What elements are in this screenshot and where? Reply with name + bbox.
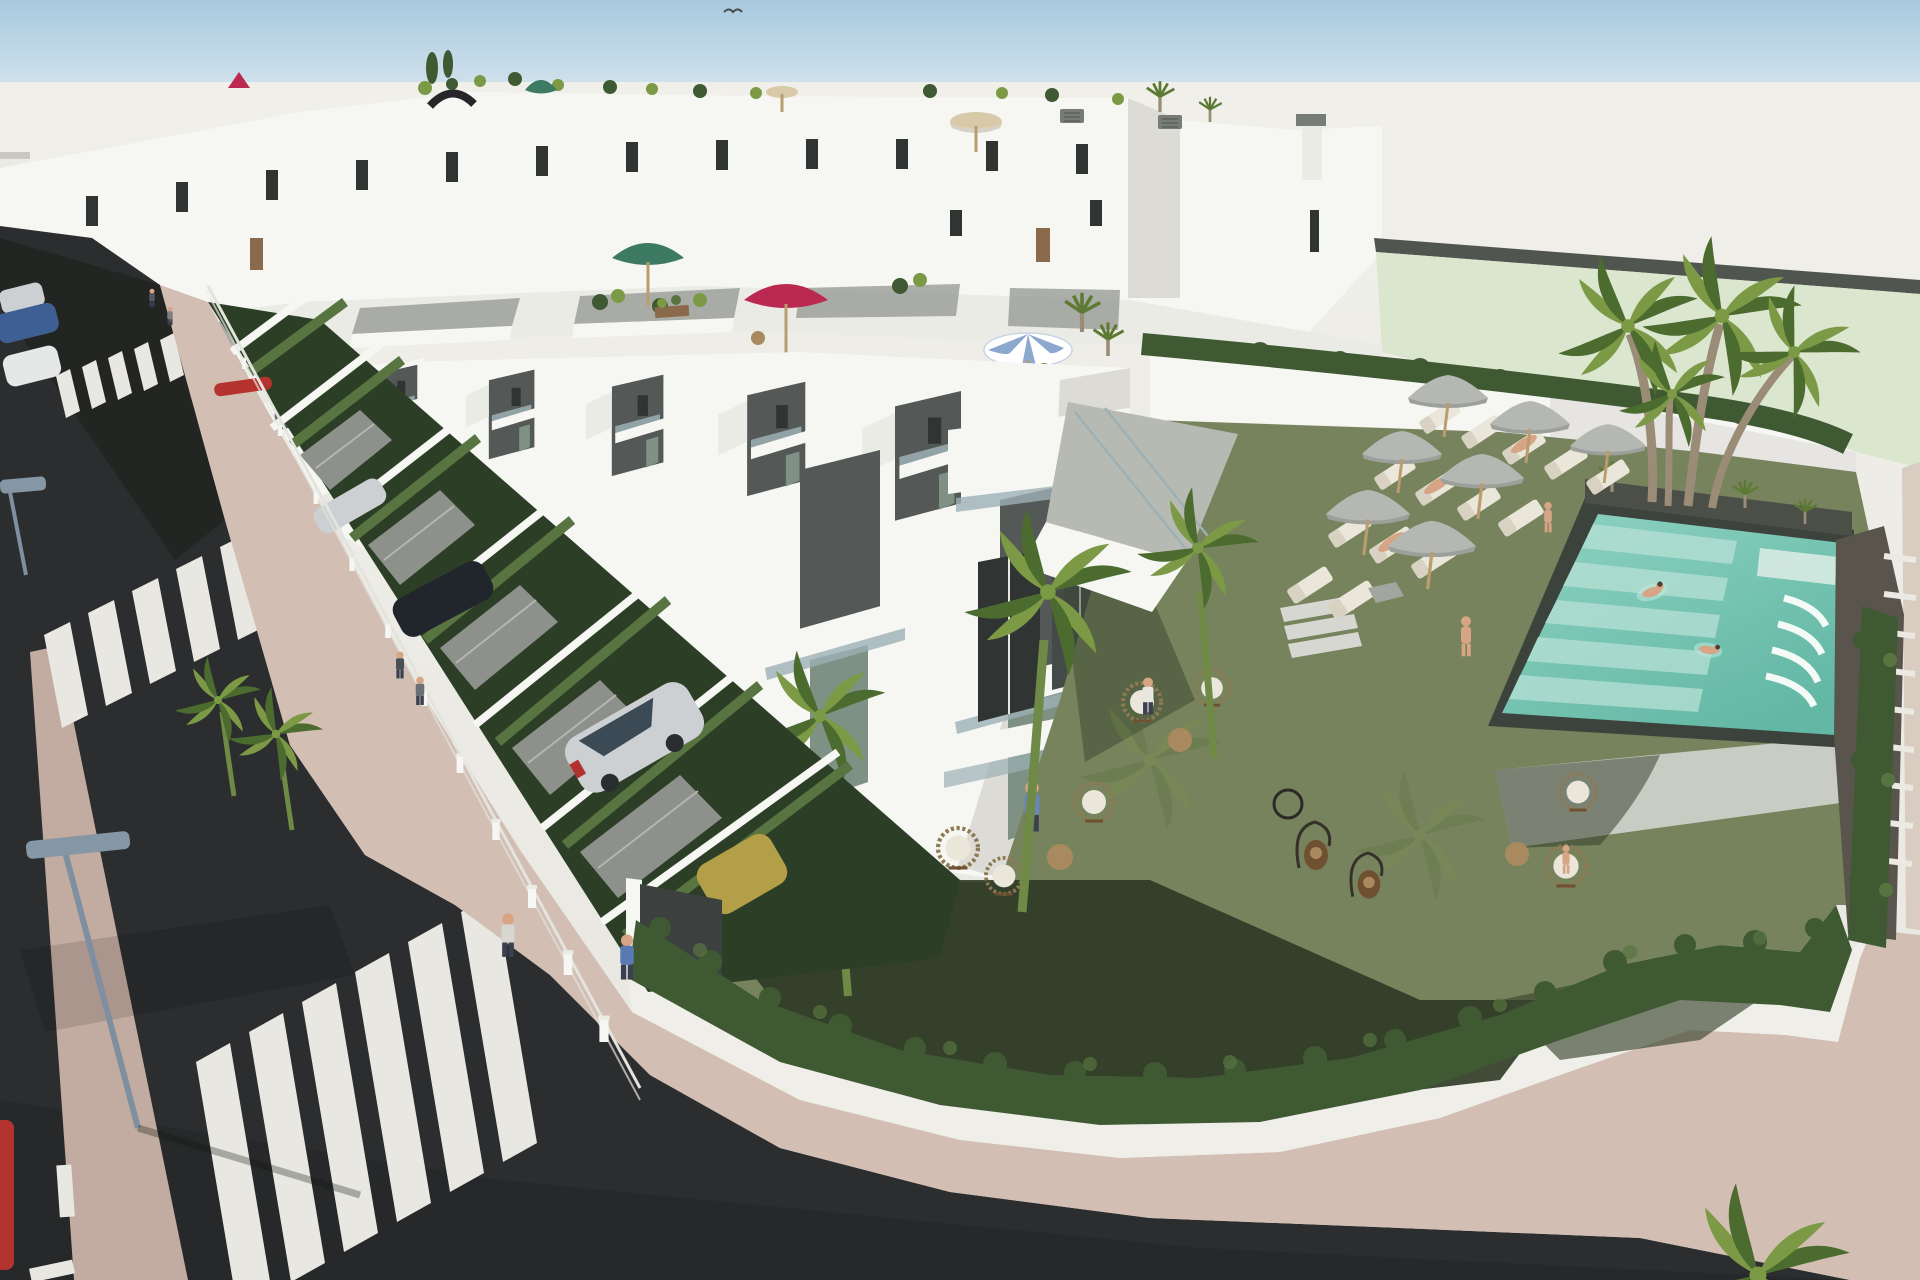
chimney bbox=[1302, 122, 1322, 180]
architectural-rendering bbox=[0, 0, 1920, 1280]
brown-door bbox=[250, 238, 263, 270]
scene-canvas bbox=[0, 0, 1920, 1280]
sky bbox=[0, 0, 1920, 84]
drum-table bbox=[1505, 842, 1529, 866]
parked-car-red-partial bbox=[0, 1120, 14, 1270]
brown-door bbox=[1036, 228, 1050, 262]
drum-table bbox=[1047, 844, 1073, 870]
drum-table bbox=[1168, 728, 1192, 752]
